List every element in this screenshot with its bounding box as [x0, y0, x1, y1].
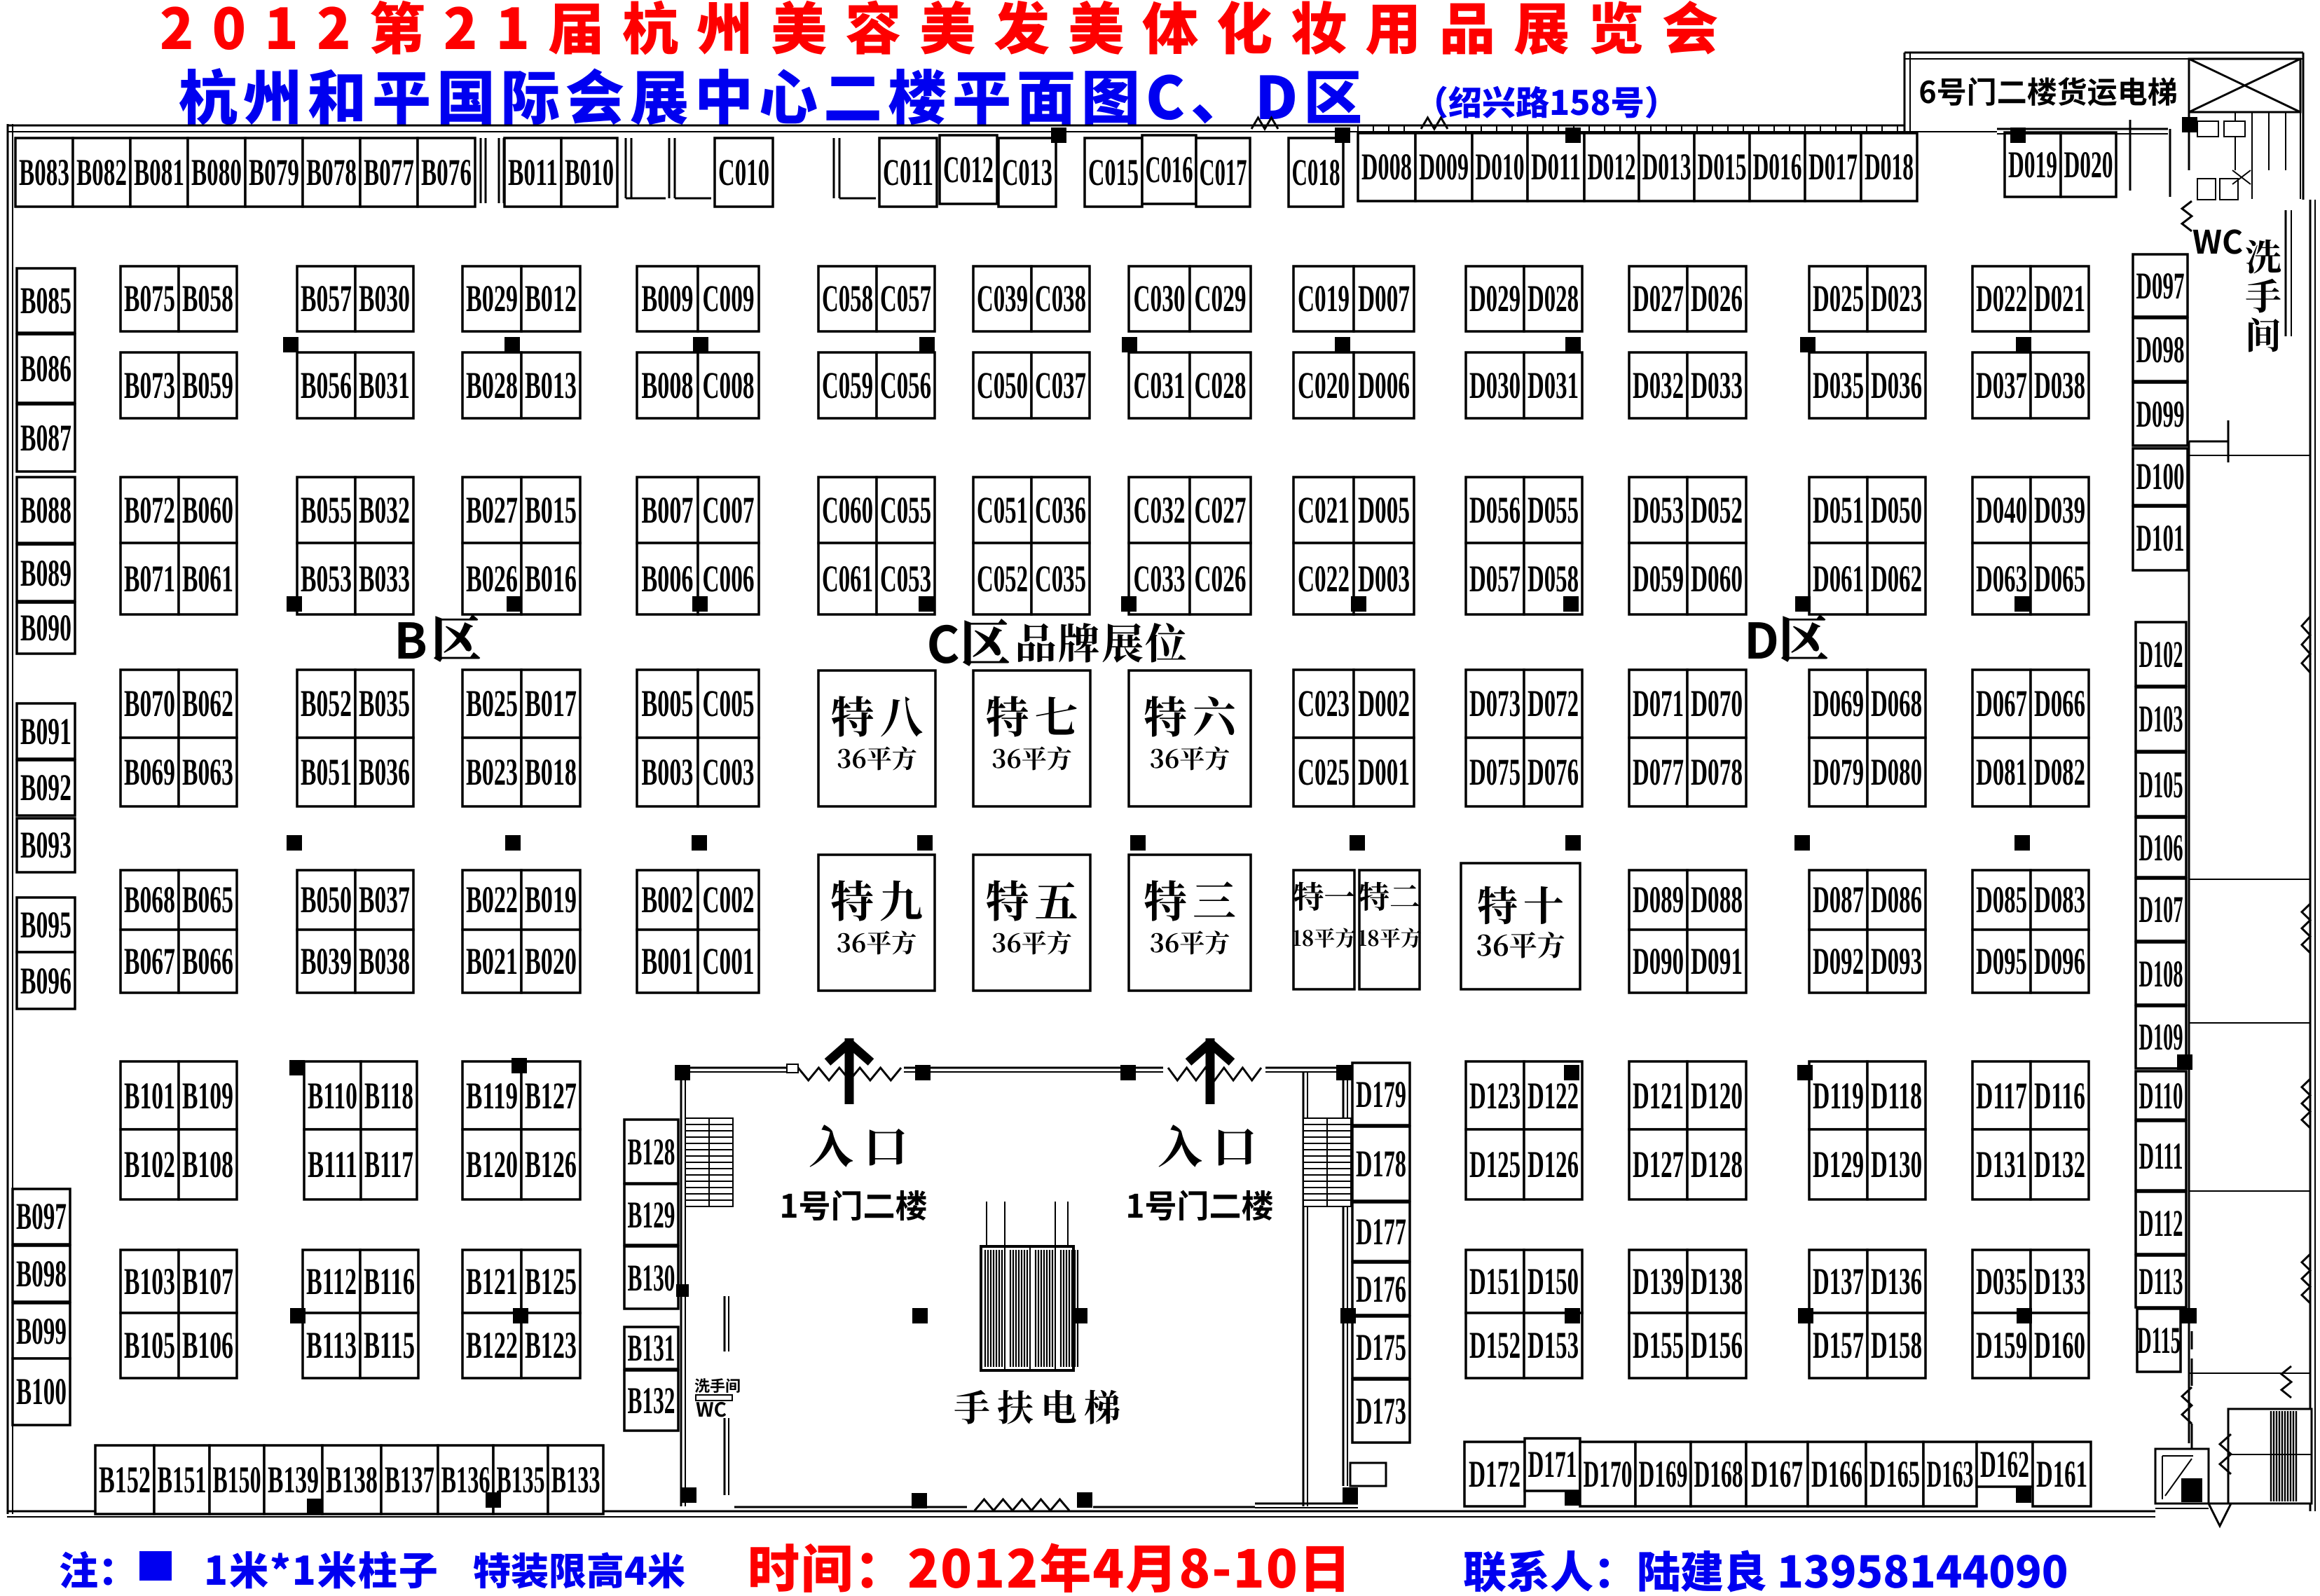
svg-text:D151: D151 — [1469, 1260, 1521, 1302]
svg-text:B012: B012 — [525, 277, 577, 319]
svg-text:B006: B006 — [642, 558, 694, 600]
svg-text:B003: B003 — [642, 751, 694, 793]
svg-text:D015: D015 — [1698, 146, 1747, 188]
svg-text:B020: B020 — [525, 940, 577, 982]
svg-text:B116: B116 — [364, 1260, 415, 1302]
svg-text:D099: D099 — [2136, 393, 2185, 435]
svg-text:D096: D096 — [2034, 940, 2085, 982]
svg-text:D072: D072 — [1528, 682, 1579, 724]
svg-text:C021: C021 — [1298, 489, 1350, 531]
svg-text:D100: D100 — [2136, 455, 2185, 497]
svg-text:D109: D109 — [2139, 1016, 2183, 1058]
svg-text:D081: D081 — [1976, 751, 2027, 793]
svg-text:D028: D028 — [1528, 277, 1579, 319]
svg-text:C028: C028 — [1195, 364, 1247, 406]
svg-text:D011: D011 — [1531, 146, 1581, 188]
svg-text:B119: B119 — [466, 1075, 518, 1117]
svg-text:D063: D063 — [1976, 558, 2027, 600]
svg-text:C036: C036 — [1035, 489, 1086, 531]
svg-text:B002: B002 — [642, 879, 694, 921]
svg-text:D052: D052 — [1691, 489, 1743, 531]
svg-text:D088: D088 — [1691, 879, 1743, 921]
svg-text:D071: D071 — [1633, 682, 1684, 724]
svg-text:B056: B056 — [301, 364, 352, 406]
svg-text:D156: D156 — [1691, 1324, 1743, 1366]
svg-text:C023: C023 — [1298, 682, 1350, 724]
svg-text:D139: D139 — [1633, 1260, 1684, 1302]
svg-text:D157: D157 — [1813, 1324, 1864, 1366]
svg-text:D172: D172 — [1469, 1453, 1521, 1495]
svg-text:D115: D115 — [2137, 1319, 2181, 1361]
svg-text:D085: D085 — [1976, 879, 2027, 921]
svg-text:C001: C001 — [703, 940, 755, 982]
svg-text:B057: B057 — [301, 277, 352, 319]
svg-text:D169: D169 — [1639, 1453, 1688, 1495]
svg-text:C018: C018 — [1292, 151, 1340, 193]
svg-text:B068: B068 — [124, 879, 175, 921]
svg-text:C052: C052 — [977, 558, 1028, 600]
svg-text:B018: B018 — [525, 751, 577, 793]
svg-text:D137: D137 — [1813, 1260, 1864, 1302]
svg-text:D126: D126 — [1528, 1143, 1579, 1185]
svg-text:C035: C035 — [1035, 558, 1086, 600]
svg-text:D090: D090 — [1633, 940, 1684, 982]
svg-text:D066: D066 — [2034, 682, 2085, 724]
svg-text:B103: B103 — [124, 1260, 175, 1302]
svg-text:B032: B032 — [359, 489, 410, 531]
svg-text:B072: B072 — [124, 489, 175, 531]
svg-text:C010: C010 — [718, 151, 769, 193]
svg-text:D082: D082 — [2034, 751, 2085, 793]
svg-text:D012: D012 — [1588, 146, 1636, 188]
svg-text:B022: B022 — [466, 879, 518, 921]
svg-text:B059: B059 — [182, 364, 233, 406]
svg-text:C061: C061 — [822, 558, 873, 600]
svg-text:B129: B129 — [628, 1194, 675, 1236]
svg-text:B038: B038 — [359, 940, 410, 982]
svg-text:D101: D101 — [2136, 517, 2185, 559]
svg-text:B025: B025 — [466, 682, 518, 724]
svg-text:C022: C022 — [1298, 558, 1350, 600]
svg-text:D103: D103 — [2139, 698, 2183, 740]
svg-text:B065: B065 — [182, 879, 233, 921]
svg-text:D133: D133 — [2034, 1260, 2085, 1302]
svg-text:D176: D176 — [1356, 1268, 1406, 1310]
svg-text:B016: B016 — [525, 558, 577, 600]
svg-text:C057: C057 — [880, 277, 931, 319]
svg-text:D159: D159 — [1976, 1324, 2027, 1366]
svg-text:D122: D122 — [1528, 1075, 1579, 1117]
svg-text:B112: B112 — [306, 1260, 357, 1302]
svg-text:C038: C038 — [1035, 277, 1086, 319]
svg-text:B139: B139 — [268, 1459, 319, 1501]
svg-text:D173: D173 — [1356, 1390, 1406, 1432]
svg-text:B053: B053 — [301, 558, 352, 600]
svg-text:C039: C039 — [977, 277, 1028, 319]
svg-text:B118: B118 — [364, 1075, 413, 1117]
svg-text:D010: D010 — [1476, 146, 1525, 188]
svg-text:C011: C011 — [883, 151, 933, 193]
svg-text:B123: B123 — [525, 1324, 577, 1366]
svg-text:D123: D123 — [1469, 1075, 1521, 1117]
svg-text:B092: B092 — [20, 766, 71, 809]
svg-text:D132: D132 — [2034, 1143, 2085, 1185]
svg-text:D095: D095 — [1976, 940, 2027, 982]
svg-text:D138: D138 — [1691, 1260, 1743, 1302]
svg-text:D129: D129 — [1813, 1143, 1864, 1185]
svg-text:B086: B086 — [20, 348, 71, 390]
svg-text:C060: C060 — [822, 489, 873, 531]
svg-text:D017: D017 — [1808, 146, 1858, 188]
svg-text:B130: B130 — [628, 1257, 675, 1299]
svg-text:D108: D108 — [2139, 953, 2183, 995]
svg-text:B095: B095 — [20, 904, 71, 946]
svg-text:B001: B001 — [642, 940, 694, 982]
svg-text:B073: B073 — [124, 364, 175, 406]
svg-text:B122: B122 — [466, 1324, 518, 1366]
svg-text:D163: D163 — [1927, 1453, 1974, 1495]
svg-text:D035: D035 — [1813, 364, 1864, 406]
svg-text:D050: D050 — [1871, 489, 1922, 531]
svg-text:B082: B082 — [76, 151, 127, 193]
svg-text:B109: B109 — [182, 1075, 233, 1117]
svg-text:B102: B102 — [124, 1143, 175, 1185]
svg-text:D116: D116 — [2034, 1075, 2085, 1117]
svg-text:D130: D130 — [1871, 1143, 1922, 1185]
svg-text:D167: D167 — [1751, 1453, 1803, 1495]
svg-text:B078: B078 — [306, 151, 357, 193]
svg-text:C015: C015 — [1088, 151, 1139, 193]
svg-text:D089: D089 — [1633, 879, 1684, 921]
svg-text:D093: D093 — [1871, 940, 1922, 982]
svg-text:D025: D025 — [1813, 277, 1864, 319]
svg-text:B017: B017 — [525, 682, 577, 724]
svg-text:D128: D128 — [1691, 1143, 1743, 1185]
svg-text:D016: D016 — [1753, 146, 1802, 188]
svg-text:D020: D020 — [2064, 144, 2113, 186]
svg-text:D160: D160 — [2034, 1324, 2085, 1366]
svg-text:D098: D098 — [2136, 329, 2185, 371]
svg-text:B009: B009 — [642, 277, 694, 319]
svg-text:D062: D062 — [1871, 558, 1922, 600]
svg-text:B062: B062 — [182, 682, 233, 724]
svg-text:D117: D117 — [1976, 1075, 2027, 1117]
svg-text:C012: C012 — [943, 149, 994, 191]
svg-text:C013: C013 — [1002, 151, 1052, 193]
svg-text:B107: B107 — [182, 1260, 233, 1302]
svg-text:C008: C008 — [703, 364, 755, 406]
svg-text:B115: B115 — [364, 1324, 415, 1366]
svg-text:D158: D158 — [1871, 1324, 1922, 1366]
svg-text:B060: B060 — [182, 489, 233, 531]
svg-text:D069: D069 — [1813, 682, 1864, 724]
svg-text:D051: D051 — [1813, 489, 1864, 531]
svg-text:D001: D001 — [1358, 751, 1410, 793]
svg-text:B101: B101 — [124, 1075, 175, 1117]
svg-text:B079: B079 — [249, 151, 299, 193]
svg-text:C059: C059 — [822, 364, 873, 406]
svg-text:D121: D121 — [1633, 1075, 1684, 1117]
svg-text:B039: B039 — [301, 940, 352, 982]
svg-text:B088: B088 — [20, 489, 71, 531]
svg-text:C032: C032 — [1134, 489, 1186, 531]
svg-text:B058: B058 — [182, 277, 233, 319]
svg-text:B010: B010 — [565, 151, 614, 193]
svg-text:D075: D075 — [1469, 751, 1521, 793]
svg-text:B089: B089 — [20, 552, 71, 594]
svg-text:D097: D097 — [2136, 265, 2185, 307]
svg-text:B100: B100 — [16, 1370, 67, 1412]
svg-text:B135: B135 — [497, 1459, 545, 1501]
svg-text:B085: B085 — [20, 280, 71, 322]
svg-text:C056: C056 — [880, 364, 931, 406]
svg-text:B015: B015 — [525, 489, 577, 531]
svg-text:D125: D125 — [1469, 1143, 1521, 1185]
svg-text:D079: D079 — [1813, 751, 1864, 793]
svg-text:D037: D037 — [1976, 364, 2027, 406]
svg-text:B027: B027 — [466, 489, 518, 531]
svg-text:B077: B077 — [364, 151, 414, 193]
svg-text:B151: B151 — [158, 1459, 207, 1501]
svg-text:C025: C025 — [1298, 751, 1350, 793]
svg-text:D111: D111 — [2139, 1135, 2183, 1177]
svg-text:C017: C017 — [1200, 151, 1247, 193]
svg-text:B097: B097 — [16, 1195, 67, 1237]
svg-text:D119: D119 — [1813, 1075, 1864, 1117]
svg-text:D105: D105 — [2139, 764, 2183, 806]
svg-text:C016: C016 — [1146, 149, 1193, 191]
svg-text:D107: D107 — [2139, 888, 2183, 930]
svg-text:C003: C003 — [703, 751, 755, 793]
svg-text:D165: D165 — [1869, 1453, 1920, 1495]
svg-text:B033: B033 — [359, 558, 410, 600]
svg-text:C058: C058 — [822, 277, 873, 319]
svg-text:D007: D007 — [1358, 277, 1410, 319]
svg-text:B131: B131 — [628, 1327, 675, 1369]
svg-text:D177: D177 — [1356, 1211, 1406, 1253]
svg-text:B081: B081 — [134, 151, 184, 193]
svg-text:C031: C031 — [1134, 364, 1186, 406]
svg-text:D009: D009 — [1419, 146, 1469, 188]
svg-text:D087: D087 — [1813, 879, 1864, 921]
svg-text:C033: C033 — [1134, 558, 1186, 600]
svg-text:D031: D031 — [1528, 364, 1579, 406]
svg-text:D070: D070 — [1691, 682, 1743, 724]
svg-text:D152: D152 — [1469, 1324, 1521, 1366]
svg-text:B098: B098 — [16, 1253, 67, 1295]
svg-text:D078: D078 — [1691, 751, 1743, 793]
svg-text:B055: B055 — [301, 489, 352, 531]
svg-text:B127: B127 — [525, 1075, 577, 1117]
svg-text:D077: D077 — [1633, 751, 1684, 793]
svg-text:D102: D102 — [2139, 633, 2183, 675]
svg-text:B093: B093 — [20, 824, 71, 866]
svg-text:B030: B030 — [359, 277, 410, 319]
svg-text:C020: C020 — [1298, 364, 1350, 406]
svg-text:D032: D032 — [1633, 364, 1684, 406]
svg-text:D061: D061 — [1813, 558, 1864, 600]
svg-text:B128: B128 — [628, 1131, 675, 1173]
svg-text:D055: D055 — [1528, 489, 1579, 531]
svg-text:D166: D166 — [1811, 1453, 1862, 1495]
svg-text:B005: B005 — [642, 682, 694, 724]
svg-text:B026: B026 — [466, 558, 518, 600]
svg-text:D168: D168 — [1694, 1453, 1743, 1495]
svg-text:D110: D110 — [2139, 1075, 2183, 1117]
svg-text:C053: C053 — [880, 558, 931, 600]
svg-text:B069: B069 — [124, 751, 175, 793]
svg-text:B061: B061 — [182, 558, 233, 600]
svg-text:D073: D073 — [1469, 682, 1521, 724]
svg-text:B071: B071 — [124, 558, 175, 600]
svg-text:D179: D179 — [1356, 1073, 1406, 1115]
svg-text:B035: B035 — [359, 682, 410, 724]
svg-text:D026: D026 — [1691, 277, 1743, 319]
svg-text:D056: D056 — [1469, 489, 1521, 531]
svg-text:D053: D053 — [1633, 489, 1684, 531]
svg-text:C026: C026 — [1195, 558, 1247, 600]
svg-text:B111: B111 — [308, 1143, 357, 1185]
svg-text:B136: B136 — [441, 1459, 490, 1501]
svg-text:D013: D013 — [1642, 146, 1691, 188]
svg-text:B138: B138 — [326, 1459, 378, 1501]
svg-text:D136: D136 — [1871, 1260, 1922, 1302]
svg-text:D039: D039 — [2034, 489, 2085, 531]
svg-text:C055: C055 — [880, 489, 931, 531]
svg-text:D058: D058 — [1528, 558, 1579, 600]
svg-text:B007: B007 — [642, 489, 694, 531]
svg-text:B113: B113 — [306, 1324, 357, 1366]
svg-text:D086: D086 — [1871, 879, 1922, 921]
svg-text:B137: B137 — [385, 1459, 434, 1501]
svg-text:B105: B105 — [124, 1324, 175, 1366]
svg-text:D057: D057 — [1469, 558, 1521, 600]
svg-text:D030: D030 — [1469, 364, 1521, 406]
svg-text:D150: D150 — [1528, 1260, 1579, 1302]
svg-text:D080: D080 — [1871, 751, 1922, 793]
svg-text:B125: B125 — [525, 1260, 577, 1302]
svg-text:B029: B029 — [466, 277, 518, 319]
svg-text:B052: B052 — [301, 682, 352, 724]
svg-text:B066: B066 — [182, 940, 233, 982]
svg-text:C009: C009 — [703, 277, 755, 319]
svg-text:D092: D092 — [1813, 940, 1864, 982]
svg-text:C005: C005 — [703, 682, 755, 724]
svg-text:C050: C050 — [977, 364, 1028, 406]
svg-text:D083: D083 — [2034, 879, 2085, 921]
svg-text:C037: C037 — [1035, 364, 1086, 406]
svg-text:D060: D060 — [1691, 558, 1743, 600]
svg-text:D175: D175 — [1356, 1326, 1406, 1368]
svg-text:C006: C006 — [703, 558, 755, 600]
svg-text:D021: D021 — [2034, 277, 2085, 319]
svg-text:B011: B011 — [508, 151, 558, 193]
svg-text:B076: B076 — [421, 151, 472, 193]
svg-text:B132: B132 — [628, 1380, 675, 1422]
svg-text:B019: B019 — [525, 879, 577, 921]
svg-text:B120: B120 — [466, 1143, 518, 1185]
svg-text:B063: B063 — [182, 751, 233, 793]
svg-text:D006: D006 — [1358, 364, 1410, 406]
svg-text:D040: D040 — [1976, 489, 2027, 531]
svg-text:D161: D161 — [2036, 1453, 2087, 1495]
svg-text:D170: D170 — [1584, 1453, 1633, 1495]
svg-text:D155: D155 — [1633, 1324, 1684, 1366]
svg-text:D008: D008 — [1361, 146, 1412, 188]
svg-text:B083: B083 — [19, 151, 69, 193]
svg-text:D162: D162 — [1980, 1443, 2029, 1485]
svg-text:C030: C030 — [1134, 277, 1186, 319]
svg-text:D033: D033 — [1691, 364, 1743, 406]
svg-text:B028: B028 — [466, 364, 518, 406]
svg-text:B051: B051 — [301, 751, 352, 793]
svg-text:D113: D113 — [2139, 1260, 2183, 1302]
svg-text:B110: B110 — [308, 1075, 357, 1117]
svg-text:D036: D036 — [1871, 364, 1922, 406]
svg-text:C027: C027 — [1195, 489, 1247, 531]
svg-text:D131: D131 — [1976, 1143, 2027, 1185]
svg-text:B036: B036 — [359, 751, 410, 793]
svg-text:D106: D106 — [2139, 827, 2183, 869]
svg-text:D029: D029 — [1469, 277, 1521, 319]
svg-text:B050: B050 — [301, 879, 352, 921]
svg-text:C002: C002 — [703, 879, 755, 921]
svg-text:B096: B096 — [20, 960, 71, 1002]
svg-text:B121: B121 — [466, 1260, 518, 1302]
svg-text:D003: D003 — [1358, 558, 1410, 600]
svg-text:D005: D005 — [1358, 489, 1410, 531]
svg-text:D022: D022 — [1976, 277, 2027, 319]
svg-text:B133: B133 — [551, 1459, 600, 1501]
svg-text:D002: D002 — [1358, 682, 1410, 724]
svg-text:B099: B099 — [16, 1310, 67, 1352]
svg-text:D120: D120 — [1691, 1075, 1743, 1117]
svg-text:B037: B037 — [359, 879, 410, 921]
svg-text:C051: C051 — [977, 489, 1028, 531]
svg-text:D127: D127 — [1633, 1143, 1684, 1185]
svg-text:D035: D035 — [1976, 1260, 2027, 1302]
svg-text:B008: B008 — [642, 364, 694, 406]
svg-text:B090: B090 — [20, 607, 71, 649]
svg-text:D023: D023 — [1871, 277, 1922, 319]
svg-text:B075: B075 — [124, 277, 175, 319]
svg-text:D068: D068 — [1871, 682, 1922, 724]
svg-text:B091: B091 — [20, 710, 71, 752]
svg-text:B150: B150 — [213, 1459, 261, 1501]
svg-text:D027: D027 — [1633, 277, 1684, 319]
svg-text:D065: D065 — [2034, 558, 2085, 600]
svg-text:D178: D178 — [1356, 1143, 1406, 1185]
svg-text:D091: D091 — [1691, 940, 1743, 982]
svg-text:B031: B031 — [359, 364, 410, 406]
svg-text:D067: D067 — [1976, 682, 2027, 724]
svg-text:D112: D112 — [2139, 1202, 2183, 1244]
svg-text:D118: D118 — [1871, 1075, 1922, 1117]
svg-text:C007: C007 — [703, 489, 755, 531]
svg-text:C029: C029 — [1195, 277, 1247, 319]
svg-text:B023: B023 — [466, 751, 518, 793]
svg-text:D153: D153 — [1528, 1324, 1579, 1366]
svg-text:B106: B106 — [182, 1324, 233, 1366]
svg-text:D019: D019 — [2008, 144, 2057, 186]
svg-text:D076: D076 — [1528, 751, 1579, 793]
svg-text:D038: D038 — [2034, 364, 2085, 406]
svg-text:D059: D059 — [1633, 558, 1684, 600]
svg-text:B126: B126 — [525, 1143, 577, 1185]
svg-text:B080: B080 — [191, 151, 242, 193]
svg-text:B070: B070 — [124, 682, 175, 724]
svg-text:B108: B108 — [182, 1143, 233, 1185]
